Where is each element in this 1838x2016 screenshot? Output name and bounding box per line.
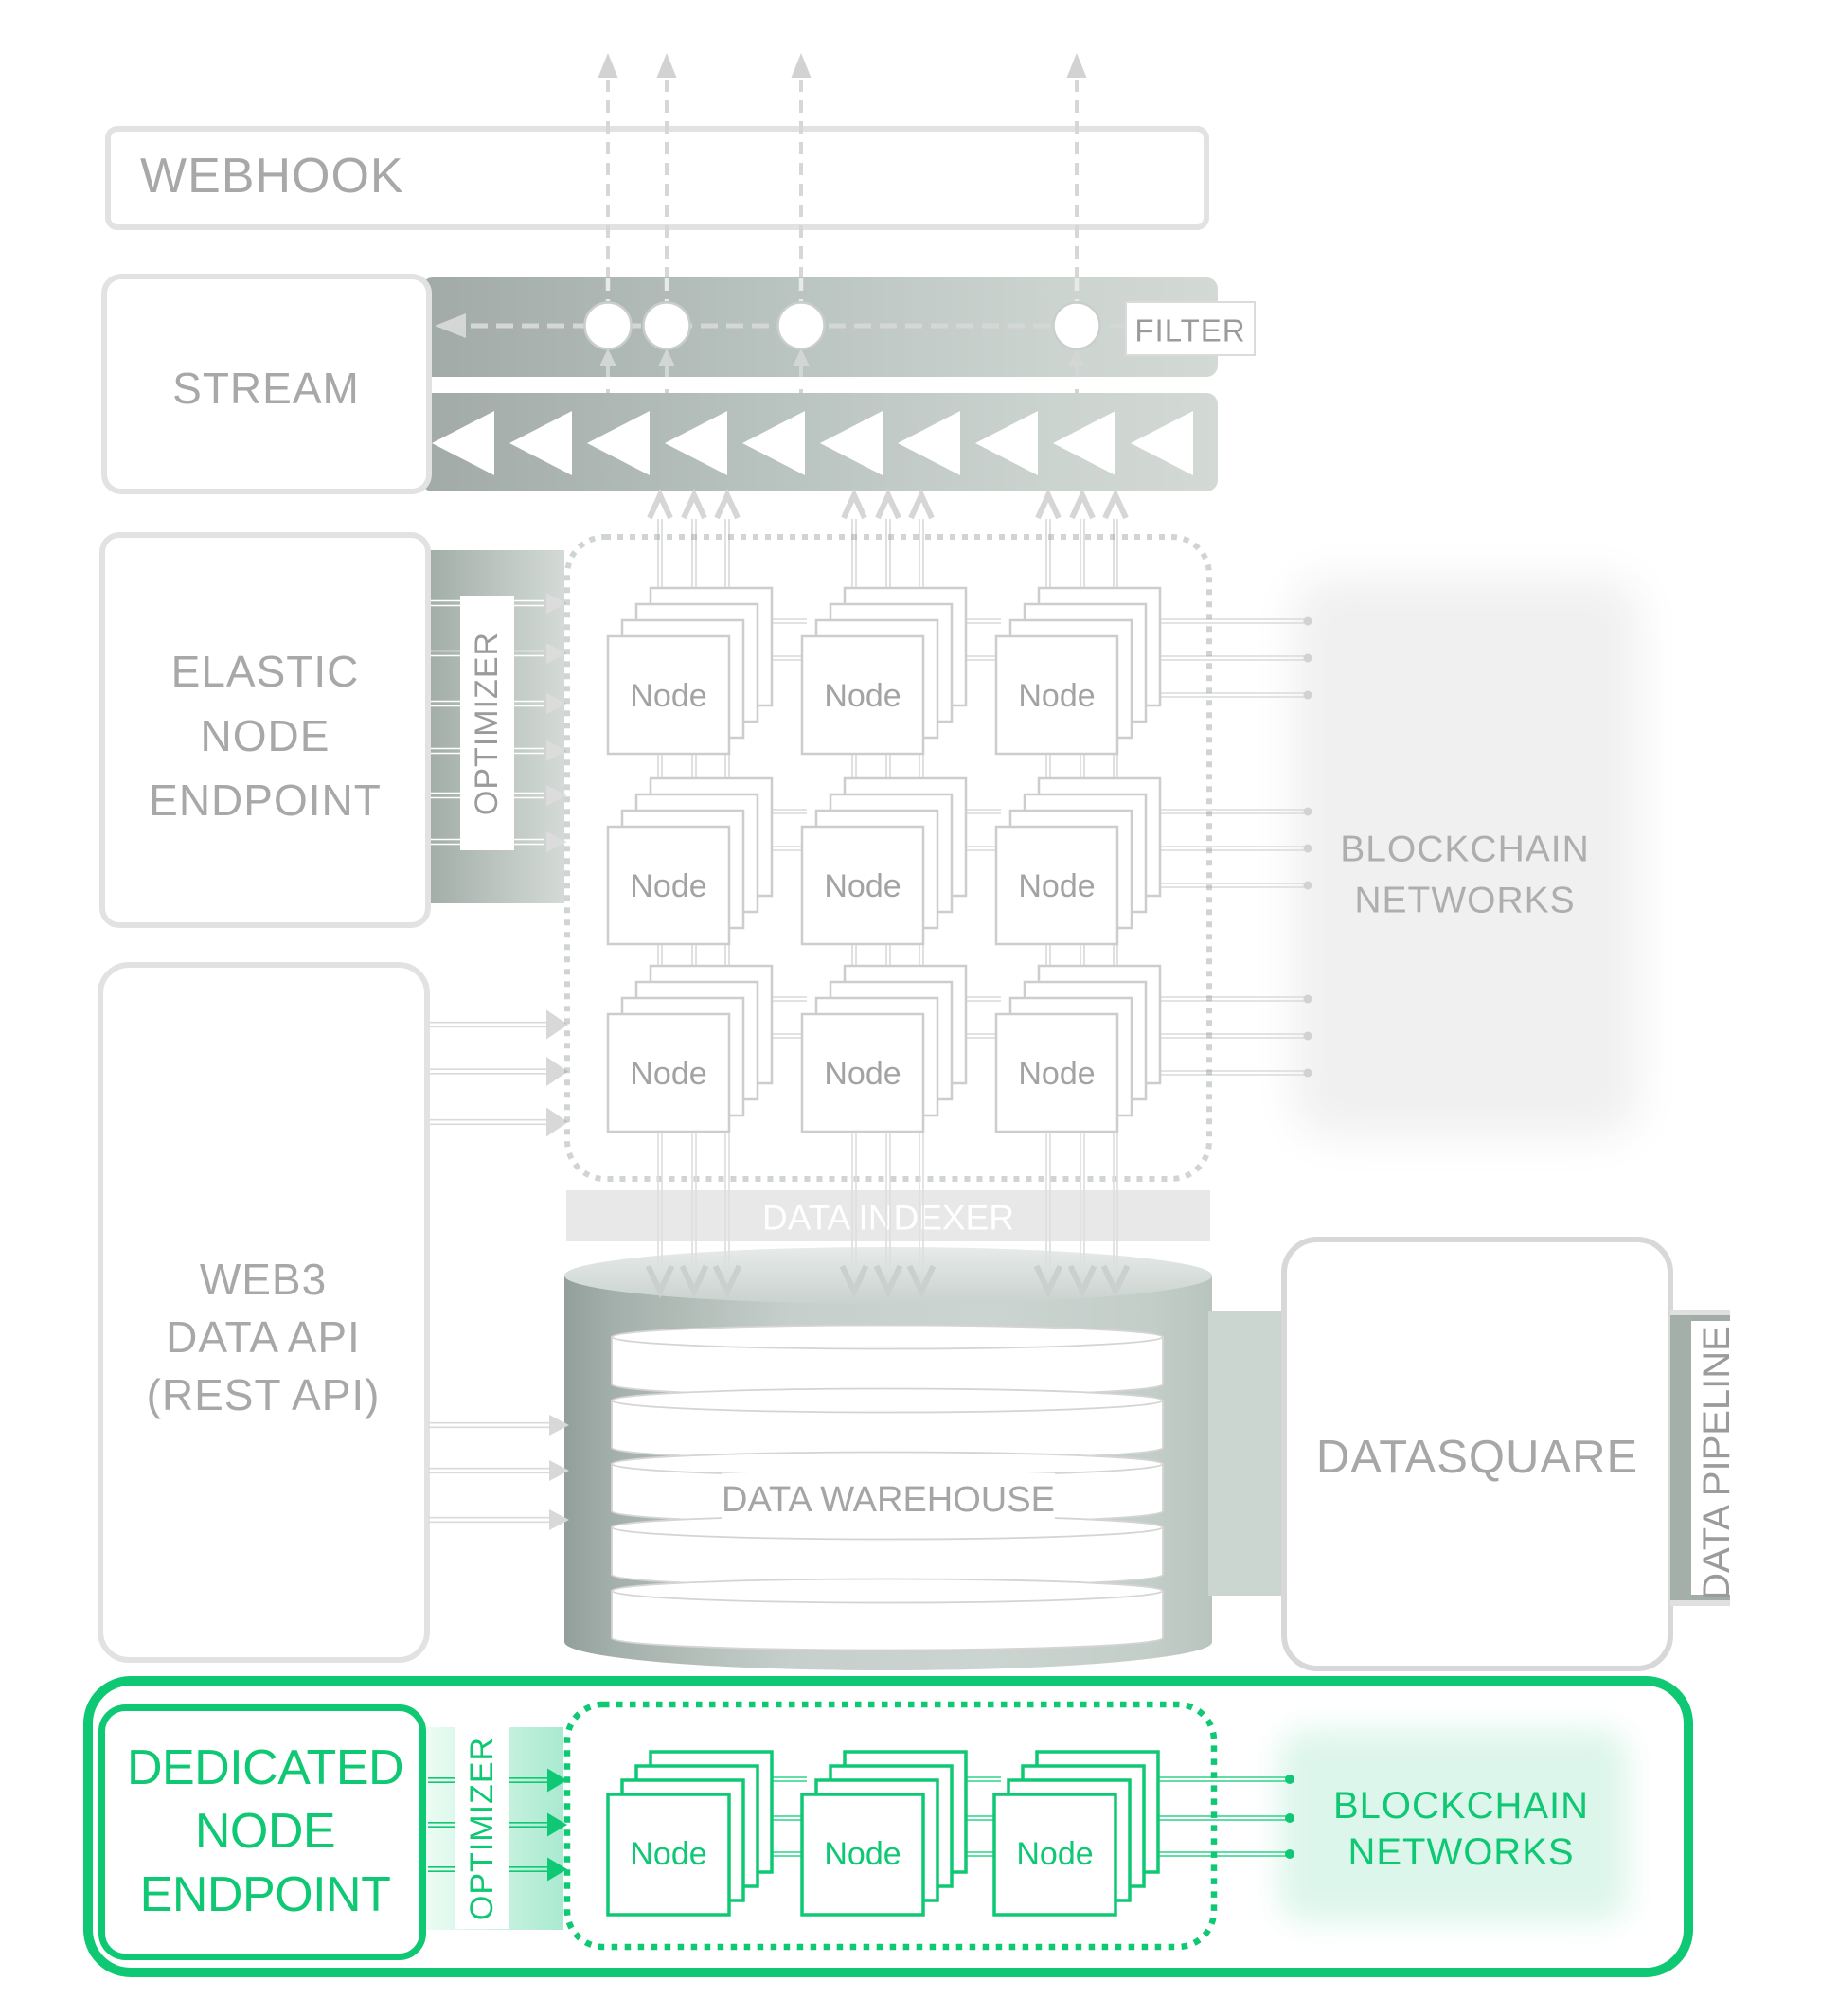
svg-text:(REST API): (REST API): [147, 1370, 381, 1419]
svg-text:ELASTIC: ELASTIC: [171, 647, 360, 696]
svg-text:Node: Node: [630, 868, 706, 904]
svg-text:NETWORKS: NETWORKS: [1347, 1831, 1574, 1873]
svg-text:Node: Node: [1016, 1836, 1093, 1872]
svg-text:WEB3: WEB3: [200, 1255, 327, 1304]
svg-text:DATA PIPELINE: DATA PIPELINE: [1696, 1326, 1738, 1600]
svg-text:Node: Node: [824, 1056, 901, 1092]
svg-text:OPTIMIZER: OPTIMIZER: [469, 632, 505, 815]
svg-text:Node: Node: [630, 678, 706, 714]
svg-text:Node: Node: [1018, 678, 1095, 714]
svg-text:Node: Node: [1018, 868, 1095, 904]
svg-text:DATA API: DATA API: [166, 1312, 361, 1362]
svg-text:OPTIMIZER: OPTIMIZER: [464, 1737, 500, 1920]
svg-text:Node: Node: [824, 868, 901, 904]
svg-text:WEBHOOK: WEBHOOK: [140, 149, 404, 204]
svg-text:NODE: NODE: [201, 711, 330, 760]
svg-text:NETWORKS: NETWORKS: [1354, 881, 1575, 921]
svg-text:DATASQUARE: DATASQUARE: [1316, 1432, 1638, 1483]
svg-text:NODE: NODE: [195, 1804, 335, 1859]
svg-text:STREAM: STREAM: [172, 364, 360, 413]
svg-text:Node: Node: [1018, 1056, 1095, 1092]
svg-text:DEDICATED: DEDICATED: [127, 1740, 403, 1795]
svg-text:BLOCKCHAIN: BLOCKCHAIN: [1333, 1785, 1589, 1827]
svg-text:ENDPOINT: ENDPOINT: [140, 1867, 391, 1922]
svg-text:FILTER: FILTER: [1134, 313, 1245, 348]
svg-text:DATA INDEXER: DATA INDEXER: [762, 1199, 1014, 1238]
svg-text:DATA WAREHOUSE: DATA WAREHOUSE: [722, 1480, 1055, 1520]
svg-text:BLOCKCHAIN: BLOCKCHAIN: [1340, 830, 1590, 870]
svg-text:Node: Node: [630, 1836, 706, 1872]
svg-text:Node: Node: [824, 678, 901, 714]
svg-text:Node: Node: [824, 1836, 901, 1872]
svg-text:ENDPOINT: ENDPOINT: [149, 776, 382, 825]
svg-text:Node: Node: [630, 1056, 706, 1092]
